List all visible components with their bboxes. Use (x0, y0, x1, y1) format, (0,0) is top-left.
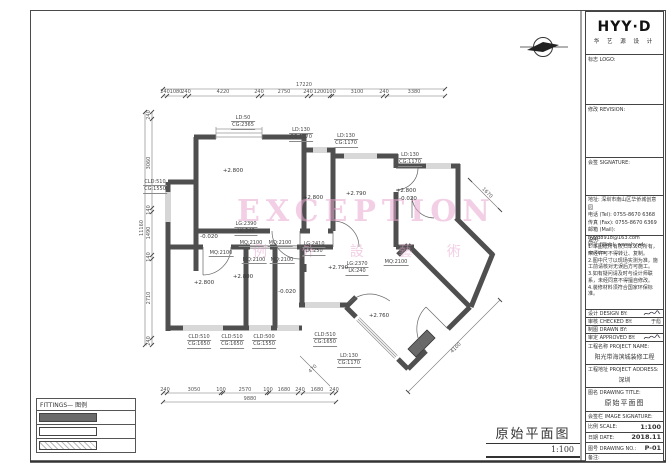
dimension-label: 240 (160, 387, 170, 393)
window-door-spec-label: CLD:510CG:1650 (220, 334, 244, 349)
project-addr-value: 深圳 (588, 375, 661, 384)
sign-row: 审定 APPROVED BY: (586, 334, 663, 342)
drawing-title-label: 图名 DRAWING TITLE: (588, 389, 661, 396)
window-door-spec-label: CLD:510CG:1650 (187, 334, 211, 349)
spec-line: CG:1650 (313, 339, 337, 346)
watermark-text: EXCEPTION (237, 194, 496, 229)
date-row: 日期 DATE: 2018.11 (586, 433, 663, 444)
dimension-label: 2710 (146, 292, 152, 305)
logo-box: HYY·D 华 艺 源 设 计 (586, 12, 663, 55)
note-line: 1.本图纸所有权归本公司所有， (588, 244, 661, 251)
dimension-label: 240 (146, 110, 152, 120)
note-line: 3.如有疑问请及时与设计师联 (588, 271, 661, 278)
scale-value: 1:100 (640, 423, 661, 431)
spec-line: CG:1550 (143, 186, 167, 193)
spec-line: CLD:510 (187, 334, 211, 341)
dimension-label: 240 (146, 336, 152, 346)
floor-level-label: -0.020 (278, 289, 296, 295)
floor-level-label: +2.800 (233, 274, 253, 280)
dimension-label: 240 (379, 89, 389, 95)
fittings-legend: FITTINGS— 图例 (36, 398, 136, 453)
note-line: 系，未经同意不得擅自修改。 (588, 278, 661, 285)
legend-header: FITTINGS— 图例 (37, 399, 135, 411)
signature-scribble-icon (643, 334, 661, 341)
dimension-label: 240 (181, 89, 191, 95)
spec-line: LD:50 (231, 115, 255, 122)
north-arrow-icon (520, 38, 568, 57)
dimension-label: 140 (146, 205, 152, 215)
dimension-label: 4220 (217, 89, 230, 95)
spec-line: CG:1170 (334, 140, 358, 147)
spec-line: CLD:500 (252, 334, 276, 341)
window-door-spec-label: LG:2390LK:240 (234, 221, 257, 236)
brand-subtitle: 华 艺 源 设 计 (586, 37, 663, 45)
sign-rows: 设计 DESIGN BY:审核 CHECKED BY:于彪制图 DRAWN BY… (586, 310, 663, 342)
date-label: 日期 DATE: (588, 434, 614, 441)
sign-row: 审核 CHECKED BY:于彪 (586, 318, 663, 326)
spec-line: MQ:2100 (268, 240, 293, 247)
project-name-field: 工程名称 PROJECT NAME: 阳光带海滨城装修工程 (586, 342, 663, 365)
company-info: 地址: 深圳市南山区华侨城创意园电话 (Tel): 0755-8670 6368… (586, 196, 663, 236)
window-door-spec-label: MQ:2100 (268, 240, 293, 247)
signature-scribble-icon (643, 310, 661, 317)
spec-line: LK:240 (345, 268, 368, 275)
dimension-label: 3060 (146, 157, 152, 170)
floor-level-label: +2.800 (194, 280, 214, 286)
window-door-spec-label: MQ:2100 (209, 250, 234, 257)
company-line: 地址: 深圳市南山区华侨城创意园 (588, 197, 661, 212)
project-addr-field: 工程地址 PROJECT ADDRESS: 深圳 (586, 365, 663, 388)
spec-line: LG:2410 (302, 241, 325, 248)
project-addr-label: 工程地址 PROJECT ADDRESS: (588, 366, 661, 373)
sign-row: 设计 DESIGN BY: (586, 310, 663, 318)
title-block: HYY·D 华 艺 源 设 计 标志 LOGO: 修改 REVISION: 会签… (585, 11, 664, 462)
dimension-label: 1680 (311, 387, 324, 393)
drawing-no-value: P-01 (645, 444, 661, 452)
window-door-spec-label: LG:2410LK:250 (302, 241, 325, 256)
sign-row-label: 制图 DRAWN BY: (588, 326, 627, 333)
dimension-label: 140 (146, 252, 152, 262)
spec-line: MQ:2100 (242, 257, 267, 264)
dimension-label: 3050 (188, 387, 201, 393)
spec-line: CG:1550 (252, 341, 276, 348)
section-signature: 会签 SIGNATURE: (586, 158, 663, 197)
spec-line: MQ:2100 (239, 240, 264, 247)
spec-line: LD:130 (337, 353, 361, 360)
dimension-label: 1680 (278, 387, 291, 393)
drawing-title-field: 图名 DRAWING TITLE: 原始平面图 (586, 388, 663, 412)
dimension-label: 240 (295, 387, 305, 393)
section-revision-label: 修改 REVISION: (588, 107, 625, 113)
drawing-title-value: 原始平面图 (588, 398, 661, 408)
spec-line: CG:1170 (289, 134, 313, 141)
drawing-sheet: EXCEPTION 例 外 設 藝 術 LD:50CG:2365LD:130CG… (0, 0, 670, 474)
floor-level-label: +2.790 (346, 191, 366, 197)
spec-line: LK:250 (302, 248, 325, 255)
dimension-label: 240 (303, 89, 313, 95)
floor-level-label: +2.800 (396, 188, 416, 194)
window-door-spec-label: MQ:2100 (239, 240, 264, 247)
spec-line: CG:2365 (231, 122, 255, 129)
notes-block: 说明: 1.本图纸所有权归本公司所有，未经许可不得转让、复制。2.图中尺寸以现场… (586, 236, 663, 310)
window-door-spec-label: CLD:510CG:1550 (143, 179, 167, 194)
dimension-label: 100 (216, 387, 226, 393)
dimension-label: 240 (329, 387, 339, 393)
section-signature-label: 会签 SIGNATURE: (588, 160, 630, 166)
sheet-frame (30, 11, 666, 462)
scale-label: 比例 SCALE: (588, 423, 617, 430)
section-logo: 标志 LOGO: (586, 55, 663, 105)
dimension-label: 100 (326, 89, 336, 95)
dimension-label: 2750 (278, 89, 291, 95)
dimension-label: 1490 (146, 227, 152, 240)
sign-row-value: 于彪 (651, 318, 661, 325)
legend-swatch-wall-outline (39, 427, 97, 436)
window-door-spec-label: LG:2370LK:240 (345, 261, 368, 276)
window-door-spec-label: LD:130CG:1170 (289, 127, 313, 142)
sign-row-label: 设计 DESIGN BY: (588, 310, 628, 317)
window-door-spec-label: LD:50CG:2365 (231, 115, 255, 130)
spec-line: CLD:510 (313, 332, 337, 339)
legend-swatch-wall-hatch (39, 441, 97, 450)
note-line: 4.装修材料须符合国家环保标准。 (588, 285, 661, 299)
spec-line: LD:130 (334, 133, 358, 140)
dimension-label: 1200 (314, 89, 327, 95)
floor-level-label: +2.790 (328, 265, 348, 271)
window-door-spec-label: MQ:2100 (384, 259, 409, 266)
floor-level-label: +2.800 (303, 195, 323, 201)
floor-level-label: -0.020 (200, 234, 218, 240)
window-door-spec-label: CLD:510CG:1650 (313, 332, 337, 347)
window-door-spec-label: LD:130CG:1170 (398, 152, 422, 167)
window-door-spec-label: MQ:2100 (270, 257, 295, 264)
dimension-label: 3380 (408, 89, 421, 95)
signature-row-label: 会签栏 IMAGE SIGNATURE: (588, 413, 653, 420)
remark-label: 备注: (588, 454, 600, 461)
spec-line: CG:1170 (337, 360, 361, 367)
dimension-label: 100 (263, 387, 273, 393)
drawing-no-label: 图号 DRAWING NO.: (588, 445, 636, 452)
signature-row: 会签栏 IMAGE SIGNATURE: (586, 412, 663, 422)
spec-line: CLD:510 (220, 334, 244, 341)
spec-line: LK:240 (234, 228, 257, 235)
plan-title: 原始平面图 1:100 (486, 423, 580, 458)
dimension-label: 17220 (296, 82, 312, 88)
spec-line: LG:2390 (234, 221, 257, 228)
brand-logo: HYY·D (586, 19, 663, 35)
legend-row (37, 439, 135, 452)
spec-line: LG:2370 (345, 261, 368, 268)
date-value: 2018.11 (631, 433, 661, 441)
legend-swatch-wall-solid (39, 413, 97, 422)
sign-row: 制图 DRAWN BY: (586, 326, 663, 334)
window-door-spec-label: LD:130CG:1170 (334, 133, 358, 148)
project-name-label: 工程名称 PROJECT NAME: (588, 343, 661, 350)
section-logo-label: 标志 LOGO: (588, 57, 616, 63)
spec-line: MQ:2100 (384, 259, 409, 266)
dimension-label: 2570 (239, 387, 252, 393)
note-line: 未经许可不得转让、复制。 (588, 251, 661, 258)
remark-row: 备注: (586, 454, 663, 461)
sign-row-label: 审核 CHECKED BY: (588, 318, 633, 325)
legend-row (37, 411, 135, 425)
spec-line: LD:130 (398, 152, 422, 159)
spec-line: MQ:2100 (270, 257, 295, 264)
sign-row-label: 审定 APPROVED BY: (588, 334, 636, 341)
dimension-label: 9880 (244, 396, 257, 402)
spec-line: CG:1650 (220, 341, 244, 348)
company-line: 电话 (Tel): 0755-8670 6368 (588, 212, 661, 220)
legend-row (37, 425, 135, 439)
floor-level-label: -0.020 (399, 196, 417, 202)
floor-level-label: +2.760 (369, 313, 389, 319)
scale-row: 比例 SCALE: 1:100 (586, 422, 663, 433)
project-name-value: 阳光带海滨城装修工程 (588, 352, 661, 361)
window-door-spec-label: CLD:500CG:1550 (252, 334, 276, 349)
section-revision: 修改 REVISION: (586, 105, 663, 157)
floor-level-label: +2.800 (223, 168, 243, 174)
spec-line: CLD:510 (143, 179, 167, 186)
dimension-label: 3100 (351, 89, 364, 95)
plan-title-text: 原始平面图 (486, 423, 580, 444)
spec-line: LD:130 (289, 127, 313, 134)
dimension-label: 11160 (139, 220, 145, 236)
spec-line: MQ:2100 (209, 250, 234, 257)
spec-line: CG:1170 (398, 159, 422, 166)
window-door-spec-label: MQ:2100 (242, 257, 267, 264)
dimension-label: 240 (254, 89, 264, 95)
spec-line: CG:1650 (187, 341, 211, 348)
drawing-no-row: 图号 DRAWING NO.: P-01 (586, 443, 663, 454)
dimension-label: 240 (160, 89, 170, 95)
plan-title-scale: 1:100 (486, 444, 580, 458)
window-door-spec-label: LD:130CG:1170 (337, 353, 361, 368)
